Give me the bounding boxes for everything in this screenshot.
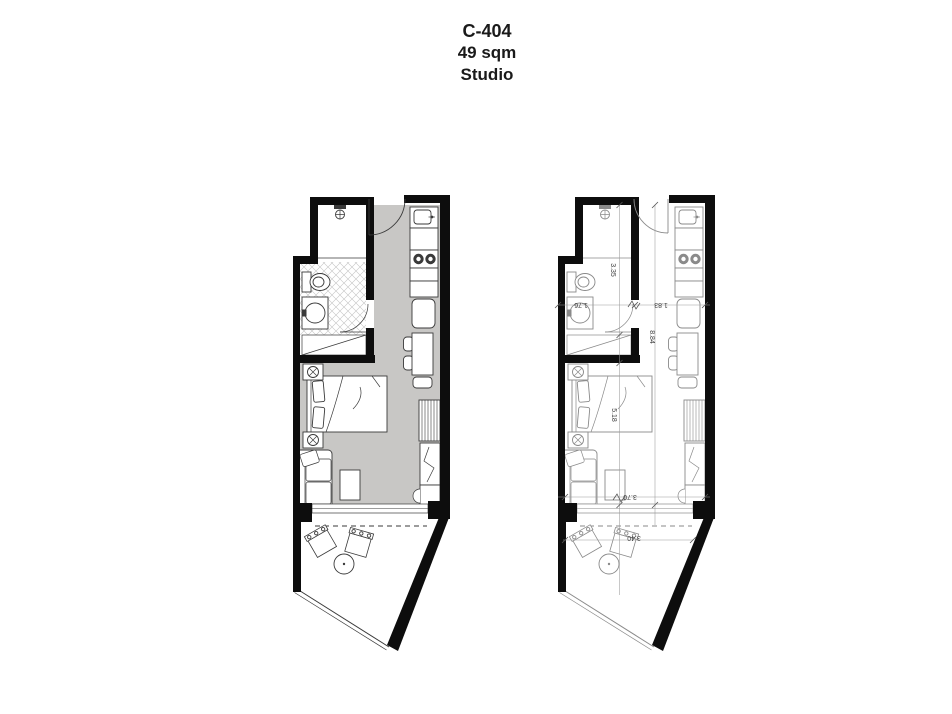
- dim-total-length: 8.84: [648, 330, 655, 344]
- dim-living-width: 3.70: [623, 493, 637, 500]
- dim-bathroom-width: 1.76: [574, 301, 588, 308]
- unit-number: C-404: [22, 20, 952, 42]
- entry-door-arc: [634, 199, 668, 233]
- furnished-floor-plan: [288, 195, 458, 653]
- unit-area: 49 sqm: [22, 42, 952, 64]
- dim-living-length: 5.18: [610, 408, 617, 422]
- dim-bathroom-length: 3.35: [609, 263, 616, 277]
- dim-kitchen-width: 1.83: [654, 301, 668, 308]
- dim-balcony-width: 3.40: [627, 534, 641, 541]
- plan-title-block: C-404 49 sqm Studio: [0, 20, 952, 86]
- unit-type: Studio: [22, 64, 952, 86]
- dimensioned-floor-plan: 3.35 1.76 1.83 8.84 5.18 3.70 3.40: [553, 195, 723, 653]
